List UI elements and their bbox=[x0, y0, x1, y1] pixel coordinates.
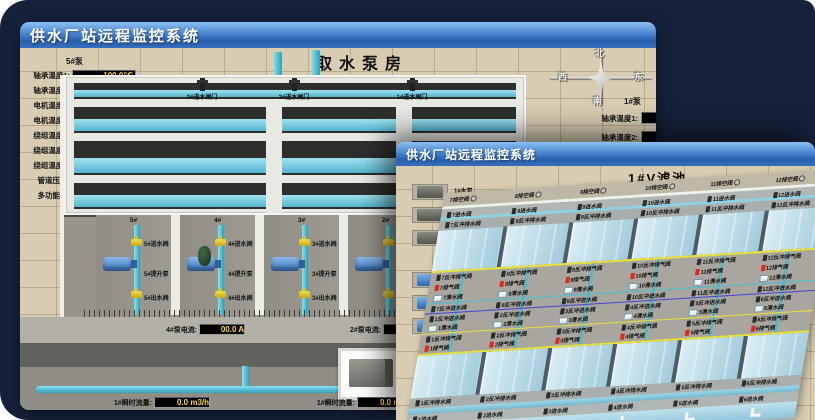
valve-label: 12清水阀 bbox=[769, 272, 793, 281]
flow-display-right: 1#瞬时流量: 0.0 m3/h bbox=[275, 397, 413, 408]
valve-label: 4排气阀 bbox=[625, 331, 646, 340]
drain-valve-label: 6反冲排水阀 bbox=[746, 377, 778, 387]
valve-label: 4清水阀 bbox=[633, 311, 654, 320]
vent-valve-label: 10排空阀 bbox=[645, 182, 669, 191]
inlet-valve-label: 9进水阀 bbox=[582, 201, 603, 210]
inlet-valve-icon[interactable] bbox=[131, 239, 142, 246]
compass-south: 南 bbox=[593, 94, 602, 107]
valve-label: 6排气阀 bbox=[755, 323, 776, 332]
panel-row-value bbox=[641, 112, 656, 124]
pipe-stub-icon bbox=[242, 366, 249, 388]
valve-cell: 4排气阀 bbox=[614, 329, 681, 341]
filter-pool-cell bbox=[606, 340, 678, 387]
gate-valve-icon[interactable] bbox=[292, 78, 297, 91]
gate-valve-icon[interactable] bbox=[410, 78, 415, 91]
inlet-valve-label: 1进水阀 bbox=[417, 414, 438, 420]
flow-value: 0.0 m3/h bbox=[154, 397, 210, 408]
flow-label: 1#瞬时流量: bbox=[275, 398, 355, 408]
vent-valve-icon[interactable] bbox=[799, 175, 806, 181]
vent-valve-icon[interactable] bbox=[470, 195, 477, 201]
panel-row-label: 轴承温度2: bbox=[594, 132, 638, 143]
filter-pool-cell bbox=[432, 227, 504, 271]
drain-valve-label: 5反冲排水阀 bbox=[681, 381, 713, 391]
drain-pipe-elbow-icon bbox=[620, 415, 632, 420]
drain-valve-label: 2反冲排水阀 bbox=[485, 393, 517, 403]
valve-label: 2清水阀 bbox=[503, 319, 524, 328]
pump-house-window-title: 供水厂站远程监控系统 bbox=[30, 25, 200, 46]
inlet-valve-label: 4进水阀 bbox=[613, 402, 634, 411]
inlet-valve-icon[interactable] bbox=[412, 416, 417, 420]
vent-valve-label: 12排空阀 bbox=[775, 174, 799, 183]
valve-cell: 6排气阀 bbox=[744, 321, 811, 333]
valve-label: 7清水阀 bbox=[443, 292, 464, 301]
pump-bay: 4# 4#进水阀 4#提升泵 4#出水阀 bbox=[180, 215, 264, 315]
gate-valve-icon[interactable] bbox=[200, 78, 205, 91]
gate-label: 1#进水闸门 bbox=[372, 92, 452, 101]
lift-pump-icon[interactable] bbox=[355, 257, 383, 271]
water-channel bbox=[74, 107, 516, 133]
valve-cell: 3排气阀 bbox=[548, 333, 615, 345]
lift-pump-label: 4#提升泵 bbox=[228, 269, 253, 278]
clean-water-tank-icon[interactable] bbox=[493, 320, 503, 328]
filter-pool-cell bbox=[671, 336, 743, 383]
valve-label: 1排气阀 bbox=[429, 343, 450, 352]
valve-label: 1清水阀 bbox=[437, 323, 458, 332]
panel-row: 轴承温度1: bbox=[594, 112, 656, 124]
vent-valve-label: 8排空阀 bbox=[514, 190, 535, 199]
clean-water-tank-icon[interactable] bbox=[433, 294, 443, 302]
drain-valve-label: 4反冲排水阀 bbox=[616, 385, 648, 395]
valve-label: 5排气阀 bbox=[690, 327, 711, 336]
filter-pool-window-title: 供水厂站远程监控系统 bbox=[406, 146, 536, 163]
filter-pool-structure: 7排空阀 8排空阀 9排空阀 10排空阀 bbox=[404, 169, 815, 420]
valve-label: 8排气阀 bbox=[504, 279, 525, 288]
clean-water-tank-icon[interactable] bbox=[628, 282, 638, 290]
valve-label: 3排气阀 bbox=[559, 335, 580, 344]
vent-valve-label: 7排空阀 bbox=[449, 194, 470, 203]
clean-water-tank-icon[interactable] bbox=[498, 290, 508, 298]
outlet-valve-icon[interactable] bbox=[383, 291, 394, 298]
valve-label: 6清水阀 bbox=[763, 303, 784, 312]
filter-pool-cell bbox=[736, 332, 808, 379]
inlet-gate[interactable]: 1#进水闸门 bbox=[372, 78, 452, 101]
inlet-valve-label: 7进水阀 bbox=[451, 209, 472, 218]
inlet-valve-label: 5#进水阀 bbox=[144, 239, 169, 248]
compass-east: 东 bbox=[634, 70, 643, 83]
outlet-valve-icon[interactable] bbox=[131, 291, 142, 298]
clean-water-tank-icon[interactable] bbox=[693, 278, 703, 286]
valve-label: 11清水阀 bbox=[703, 276, 727, 285]
bay-number: 4# bbox=[180, 217, 255, 224]
inlet-valve-label: 4#进水阀 bbox=[228, 239, 253, 248]
inlet-valve-label: 10进水阀 bbox=[647, 197, 671, 206]
water-pump-icon[interactable] bbox=[417, 209, 443, 221]
valve-cell: 2排气阀 bbox=[483, 337, 550, 349]
pump1-panel-header: 1#泵 bbox=[624, 96, 641, 107]
outlet-valve-icon[interactable] bbox=[215, 291, 226, 298]
inlet-valve-label: 3进水阀 bbox=[548, 406, 569, 415]
valve-label: 9清水阀 bbox=[573, 284, 594, 293]
flow-meter-device bbox=[338, 348, 404, 400]
filter-pool-cell bbox=[410, 352, 482, 399]
compass-star-icon bbox=[589, 62, 613, 94]
vent-valve-cell: 11排空阀 bbox=[704, 176, 771, 188]
inlet-valve-label: 11进水阀 bbox=[712, 193, 736, 202]
valve-label: 2排气阀 bbox=[494, 339, 515, 348]
valve-label: 9排气阀 bbox=[570, 275, 591, 284]
vent-valve-cell: 12排空阀 bbox=[769, 172, 815, 184]
vent-valve-icon[interactable] bbox=[733, 179, 740, 185]
clean-water-tank-icon[interactable] bbox=[428, 324, 438, 332]
vent-valve-cell: 10排空阀 bbox=[639, 180, 706, 192]
current-label: 4#泵电流: bbox=[166, 325, 197, 335]
vent-valve-cell: 9排空阀 bbox=[573, 184, 640, 196]
clean-water-tank-icon[interactable] bbox=[688, 309, 698, 317]
water-pump-icon[interactable] bbox=[417, 186, 443, 198]
valve-cell: 5排气阀 bbox=[679, 325, 746, 337]
inlet-valve-label: 5进水阀 bbox=[678, 398, 699, 407]
drain-pipe-elbow-icon bbox=[750, 407, 762, 417]
channel-divider bbox=[266, 105, 282, 213]
compass-north: 北 bbox=[595, 46, 604, 59]
valve-label: 10清水阀 bbox=[638, 280, 662, 289]
vent-valve-cell: 7排空阀 bbox=[443, 192, 510, 204]
channel-cell bbox=[730, 405, 797, 418]
valve-label: 12排气阀 bbox=[765, 262, 789, 271]
channel-cell bbox=[665, 409, 732, 420]
lift-pump-label: 5#提升泵 bbox=[144, 269, 169, 278]
current-value: 00.0 A bbox=[199, 324, 245, 335]
clean-water-tank-icon[interactable] bbox=[558, 316, 568, 324]
lift-pump-label: 3#提升泵 bbox=[312, 269, 337, 278]
gate-label: 2#进水闸门 bbox=[254, 92, 334, 101]
clean-water-tank-icon[interactable] bbox=[759, 274, 769, 282]
outlet-valve-icon[interactable] bbox=[299, 291, 310, 298]
lift-pump-icon[interactable] bbox=[103, 257, 131, 271]
filter-pool-cell bbox=[693, 211, 765, 255]
pump-bay: 3# 3#进水阀 3#提升泵 3#出水阀 bbox=[264, 215, 348, 315]
drain-pipe-elbow-icon bbox=[685, 411, 697, 420]
inlet-gates: 3#进水闸门 2#进水闸门 1#进水闸门 bbox=[20, 48, 520, 108]
channel-cell bbox=[600, 413, 667, 420]
inlet-valve-label: 12进水阀 bbox=[778, 189, 802, 198]
flow-display-left: 1#瞬时流量: 0.0 m3/h bbox=[72, 397, 210, 408]
vent-valve-icon[interactable] bbox=[600, 187, 607, 193]
valve-label: 8清水阀 bbox=[508, 288, 529, 297]
valve-label: 3清水阀 bbox=[568, 315, 589, 324]
valve-label: 10排气阀 bbox=[635, 270, 659, 279]
filter-pool-scene: 1#V滤池 1#水泵 2#水泵 3#水泵 bbox=[396, 166, 815, 420]
valve-label: 5清水阀 bbox=[698, 307, 719, 316]
valve-label: 11排气阀 bbox=[700, 266, 724, 275]
filter-pool-cell bbox=[541, 344, 613, 391]
vent-valve-icon[interactable] bbox=[535, 191, 542, 197]
pump4-current-display: 4#泵电流: 00.0 A bbox=[166, 324, 245, 335]
pump-bay: 5# 5#进水阀 5#提升泵 5#出水阀 bbox=[96, 215, 180, 315]
filter-pool-cell bbox=[497, 223, 569, 267]
inlet-gate[interactable]: 3#进水闸门 bbox=[162, 78, 242, 101]
flow-meter-machine-icon bbox=[349, 359, 393, 387]
drain-valve-label: 3反冲排水阀 bbox=[550, 389, 582, 399]
pump-house-titlebar[interactable]: 供水厂站远程监控系统 bbox=[20, 22, 656, 48]
flow-label: 1#瞬时流量: bbox=[72, 398, 152, 408]
lift-pump-icon[interactable] bbox=[271, 257, 299, 271]
inlet-valve-label: 6进水阀 bbox=[743, 394, 764, 403]
barrel-icon bbox=[198, 246, 211, 266]
vent-valve-icon[interactable] bbox=[668, 183, 675, 189]
inlet-valve-label: 8进水阀 bbox=[517, 205, 538, 214]
valve-label: 7排气阀 bbox=[439, 283, 460, 292]
outlet-valve-label: 3#出水阀 bbox=[312, 293, 337, 302]
clean-water-tank-icon[interactable] bbox=[623, 313, 633, 321]
filter-pool-window: 供水厂站远程监控系统 1#V滤池 1#水泵 2#水泵 bbox=[396, 142, 815, 420]
vent-valve-label: 9排空阀 bbox=[579, 186, 600, 195]
outlet-valve-label: 4#出水阀 bbox=[228, 293, 253, 302]
inlet-valve-label: 2进水阀 bbox=[482, 410, 503, 419]
compass-west: 西 bbox=[558, 70, 567, 83]
clean-water-tank-icon[interactable] bbox=[754, 305, 764, 313]
gate-label: 3#进水闸门 bbox=[162, 92, 242, 101]
inlet-valve-icon[interactable] bbox=[215, 239, 226, 246]
outlet-valve-label: 5#出水阀 bbox=[144, 293, 169, 302]
filter-pool-cell bbox=[758, 207, 815, 251]
bay-number: 5# bbox=[96, 217, 171, 224]
panel-row-label: 轴承温度1: bbox=[594, 113, 638, 124]
current-label: 2#泵电流: bbox=[350, 325, 381, 335]
clean-water-tank-icon[interactable] bbox=[563, 286, 573, 294]
filter-pool-cell bbox=[562, 219, 634, 263]
vent-valve-cell: 8排空阀 bbox=[508, 188, 575, 200]
vent-valve-label: 11排空阀 bbox=[710, 178, 734, 187]
inlet-gate[interactable]: 2#进水闸门 bbox=[254, 78, 334, 101]
valve-cell: 1排气阀 bbox=[418, 341, 485, 353]
filter-pool-cell bbox=[476, 348, 548, 395]
bay-number: 3# bbox=[264, 217, 339, 224]
inlet-valve-label: 3#进水阀 bbox=[312, 239, 337, 248]
inlet-valve-icon[interactable] bbox=[299, 239, 310, 246]
filter-pool-titlebar[interactable]: 供水厂站远程监控系统 bbox=[396, 142, 815, 166]
filter-pool-cell bbox=[627, 215, 699, 259]
drain-valve-label: 1反冲排水阀 bbox=[420, 397, 452, 407]
inlet-valve-icon[interactable] bbox=[383, 239, 394, 246]
